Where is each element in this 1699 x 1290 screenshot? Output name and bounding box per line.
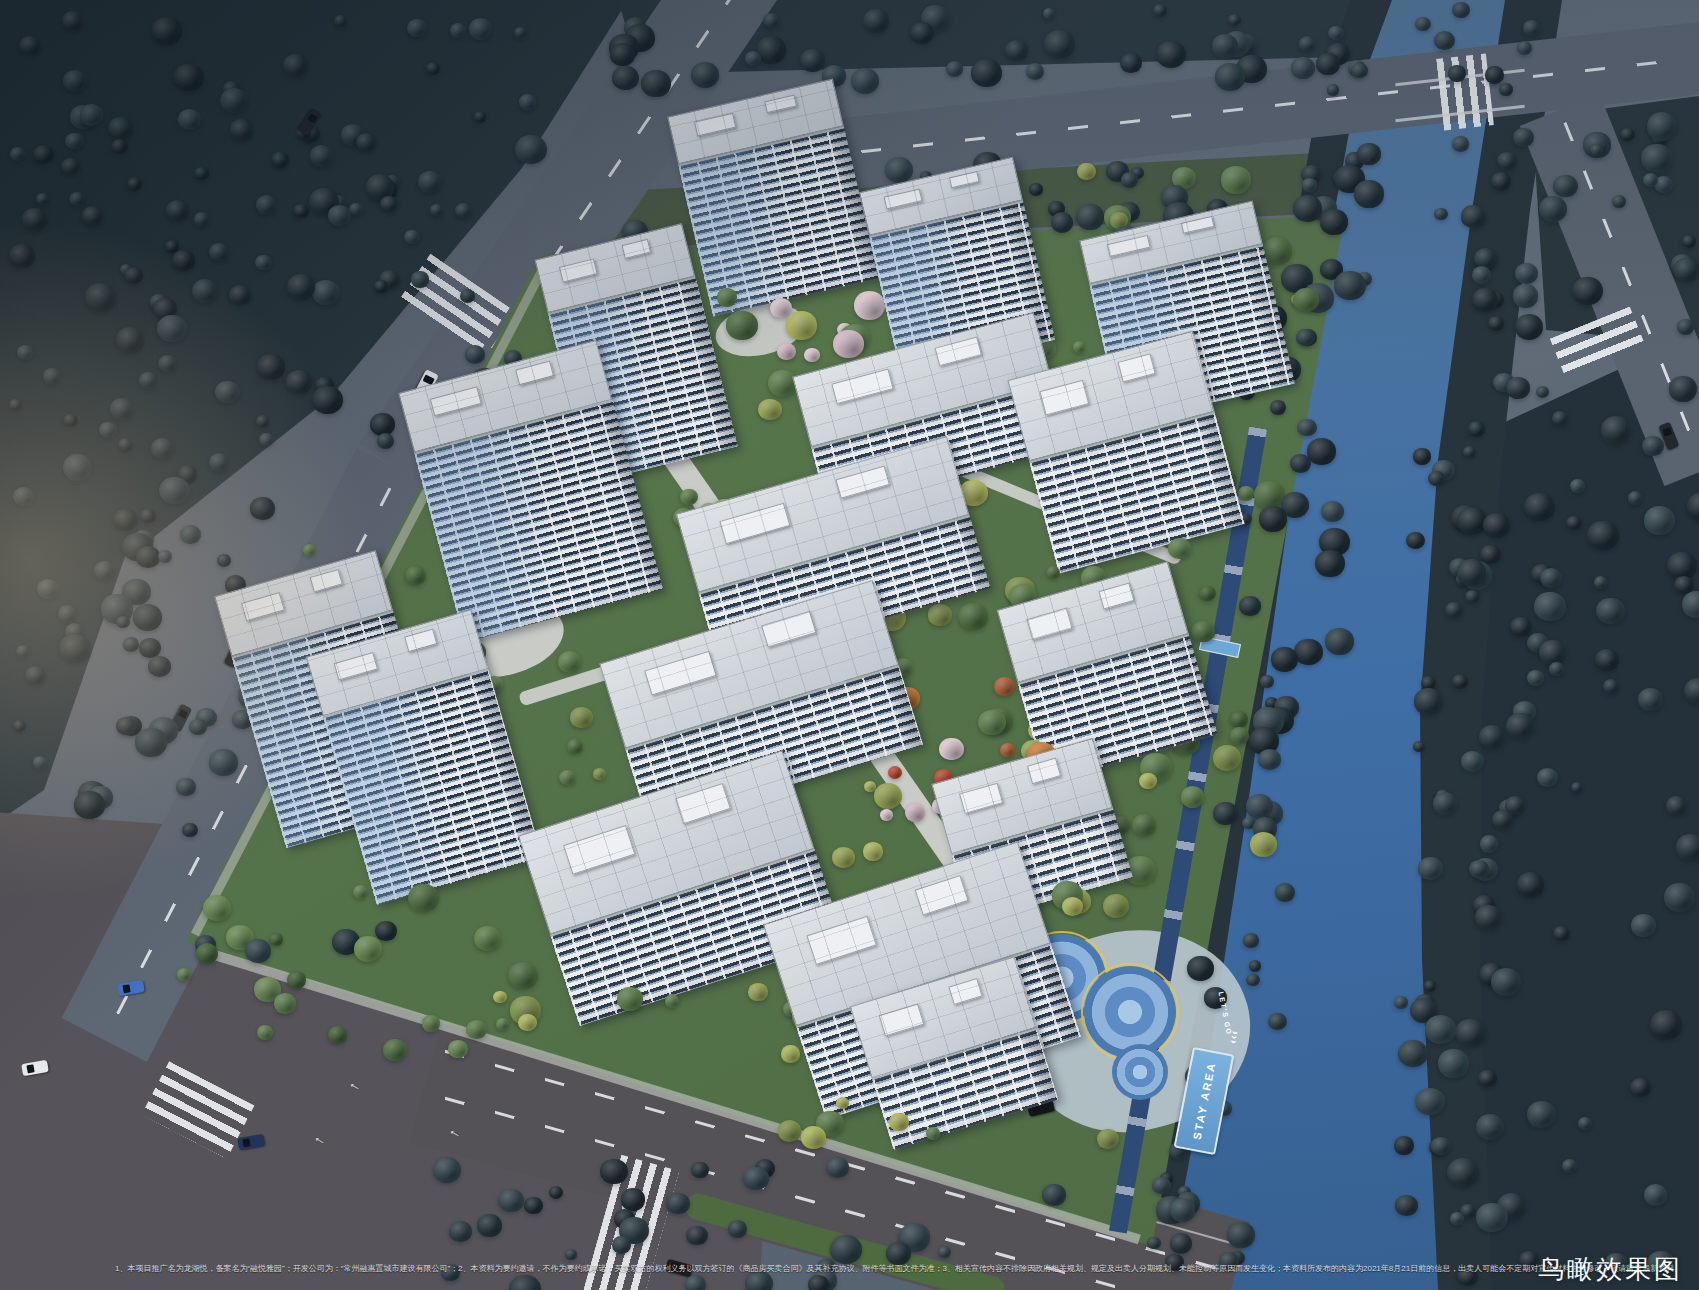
tree [1595, 649, 1619, 671]
tree [1325, 628, 1355, 655]
tree [229, 285, 250, 305]
tree [1447, 1158, 1479, 1187]
tree [1431, 1137, 1451, 1155]
tree [430, 204, 442, 215]
tree [800, 49, 825, 72]
tree [1243, 933, 1259, 948]
tree [1258, 749, 1281, 770]
tree [1478, 1070, 1496, 1087]
aerial-render-scene: ↑ ↑ ↑ ↑ STAY AREA LET'S GO ››› 1、本项目推广名为… [0, 0, 1699, 1290]
tree [1073, 341, 1085, 352]
tree [61, 158, 79, 175]
tree [612, 66, 639, 91]
tree [1682, 235, 1696, 248]
tree [680, 489, 698, 505]
roof-structure [883, 189, 922, 210]
tree [209, 243, 229, 261]
tree [1664, 883, 1695, 912]
tree [1537, 768, 1558, 787]
tree [123, 637, 139, 652]
tree [356, 133, 376, 152]
tree [928, 604, 951, 626]
tree [1246, 794, 1273, 819]
tree [758, 399, 782, 421]
tree [9, 399, 22, 411]
tree [1450, 1212, 1464, 1225]
tree [37, 579, 59, 599]
tree [65, 133, 83, 150]
tree [375, 921, 397, 941]
tree [610, 43, 635, 66]
tree [380, 196, 398, 212]
tree [617, 987, 643, 1011]
tree [22, 208, 47, 231]
roof-structure [310, 569, 343, 592]
tree [220, 88, 248, 114]
tree [1097, 1129, 1119, 1149]
tree [1631, 914, 1656, 937]
tree [9, 244, 35, 268]
tree [135, 728, 167, 757]
tree [1418, 857, 1443, 880]
tree [312, 280, 339, 305]
tree [685, 1275, 706, 1290]
tree [808, 1275, 829, 1290]
tree [1572, 277, 1603, 305]
tree [433, 1157, 461, 1183]
tree [1534, 592, 1565, 621]
tree [25, 666, 45, 685]
tree [1587, 521, 1618, 550]
car-windshield [1662, 427, 1672, 436]
tree [255, 255, 271, 270]
tree [286, 370, 312, 394]
tree [1334, 271, 1366, 300]
tree [1005, 40, 1028, 61]
tree [493, 991, 506, 1003]
tree [508, 962, 538, 989]
car-windshield [178, 709, 188, 719]
tree [621, 1188, 645, 1210]
tree [1480, 835, 1499, 852]
tree [466, 1020, 487, 1039]
tree [593, 768, 606, 780]
tree [1469, 860, 1488, 878]
tree [1452, 136, 1469, 151]
tree [1213, 802, 1238, 825]
tree [474, 111, 486, 122]
tree [1455, 1019, 1486, 1047]
tree [786, 311, 817, 340]
roof-structure [879, 1004, 924, 1037]
tree [1228, 14, 1241, 26]
tree [196, 943, 218, 964]
tree [139, 638, 161, 658]
roof-structure [959, 782, 1003, 813]
tree [926, 1127, 940, 1140]
tree [826, 1157, 849, 1178]
tree [139, 372, 157, 388]
tree [691, 1162, 709, 1178]
tree [1415, 1088, 1445, 1115]
tree [411, 271, 429, 287]
tree [159, 477, 189, 505]
tree [1480, 545, 1501, 564]
car-windshield [307, 113, 318, 123]
tree [203, 895, 232, 921]
tree [1395, 1195, 1418, 1216]
tree [666, 1193, 689, 1214]
tree [1296, 329, 1315, 346]
tree [863, 842, 883, 860]
car-windshield [122, 984, 130, 993]
tree [209, 453, 229, 472]
tree [1601, 416, 1631, 444]
tree [173, 64, 203, 92]
tree [404, 230, 419, 244]
tree [192, 279, 218, 303]
roof-structure [644, 651, 717, 696]
roof-structure [404, 629, 438, 652]
roof-structure [1098, 582, 1134, 609]
tree [1299, 36, 1316, 51]
roof-structure [1181, 216, 1214, 234]
tree [1491, 172, 1511, 191]
tree [136, 546, 159, 567]
tree [1187, 956, 1214, 981]
tree [1461, 751, 1484, 772]
tree [477, 1214, 502, 1237]
tree [565, 1249, 577, 1260]
tree [1120, 53, 1142, 73]
tree [63, 70, 86, 91]
tree [1221, 166, 1251, 193]
tree [189, 719, 207, 735]
tree [1638, 688, 1663, 711]
tree [1485, 66, 1504, 83]
tree [1191, 621, 1215, 643]
roof-structure [241, 592, 284, 621]
tree [43, 368, 61, 385]
tree [1415, 17, 1431, 31]
tree [686, 1226, 707, 1245]
roof-structure [765, 94, 797, 113]
tree [274, 993, 296, 1013]
tree [778, 1120, 802, 1142]
tree [958, 603, 987, 630]
roof-structure [831, 368, 894, 404]
roof-structure [1039, 380, 1089, 416]
tree [1026, 63, 1045, 80]
tree [889, 1113, 908, 1131]
tree [1297, 419, 1316, 437]
tree [283, 54, 308, 77]
tree [1213, 745, 1242, 771]
roof-structure [934, 337, 982, 366]
roof-structure [559, 258, 598, 282]
tree [1570, 479, 1585, 492]
tree [1628, 491, 1643, 505]
tree [1170, 1233, 1193, 1254]
tree [1483, 513, 1510, 538]
tree [1246, 974, 1260, 986]
tree [257, 354, 285, 380]
tree [1643, 173, 1659, 187]
tree [836, 1097, 849, 1109]
tree [33, 756, 47, 769]
tree [69, 192, 85, 206]
roof-structure [622, 239, 652, 259]
tree [1413, 448, 1431, 464]
tree [1491, 968, 1522, 996]
tree [1029, 183, 1043, 196]
tree [1357, 143, 1381, 165]
tree [1398, 1040, 1428, 1068]
tree [1394, 1136, 1414, 1155]
tree [1603, 679, 1619, 694]
tree [1271, 647, 1298, 672]
tree [157, 315, 187, 342]
roof-structure [694, 113, 736, 136]
car-windshield [26, 1064, 34, 1073]
tree [1315, 550, 1345, 577]
tree [939, 738, 963, 760]
tree [748, 983, 767, 1001]
tree [1249, 960, 1261, 971]
tree [1394, 996, 1407, 1008]
tree [1553, 175, 1577, 198]
tree [1562, 1159, 1577, 1173]
tree [515, 135, 547, 164]
tree [559, 770, 576, 785]
roof-structure [430, 386, 482, 416]
tree [1539, 196, 1567, 222]
tree [259, 433, 274, 447]
tree [99, 422, 117, 439]
tree [455, 203, 472, 219]
tree [1596, 598, 1624, 624]
tree [509, 1275, 541, 1290]
tree [80, 104, 103, 125]
tree [832, 847, 855, 868]
tree [1215, 63, 1245, 91]
tree [62, 11, 83, 30]
tree [180, 525, 201, 544]
tree [1153, 4, 1167, 17]
tree [1515, 314, 1543, 340]
roof-structure [1026, 608, 1073, 641]
tree [910, 22, 934, 44]
tree [1445, 602, 1463, 618]
tree [763, 13, 779, 28]
roof-structure [761, 611, 817, 648]
tree [374, 280, 388, 293]
roof-structure [807, 916, 877, 966]
tree [768, 370, 797, 396]
tree [558, 651, 581, 673]
playground-circle [1112, 1044, 1168, 1100]
tree [1641, 144, 1673, 173]
tree [194, 212, 209, 226]
tree [1230, 727, 1249, 744]
tree [1463, 446, 1476, 458]
tree [726, 311, 758, 340]
tree [245, 939, 271, 963]
tree [418, 171, 442, 193]
tree [1497, 152, 1517, 170]
tree [1227, 1222, 1255, 1248]
tree [250, 497, 275, 520]
tree [1238, 486, 1254, 501]
tree [1327, 84, 1339, 95]
tree [1517, 872, 1545, 897]
tree [1156, 41, 1186, 69]
tree [498, 1189, 524, 1213]
tree [148, 656, 171, 677]
tree [1644, 1184, 1668, 1206]
tree [110, 398, 134, 420]
tree [665, 994, 680, 1007]
tree [1294, 639, 1322, 665]
tree [1438, 1049, 1469, 1078]
tree [113, 509, 138, 532]
tree [116, 327, 144, 353]
tree [94, 561, 115, 580]
tree [518, 1014, 537, 1031]
tree [82, 206, 103, 225]
tree [1468, 421, 1486, 437]
tree [777, 343, 795, 360]
tree [33, 145, 54, 164]
tree [172, 250, 195, 271]
tree [1673, 258, 1699, 282]
tree [230, 119, 253, 141]
roof-structure [949, 171, 979, 188]
tree [600, 1159, 627, 1184]
tree [1414, 688, 1443, 715]
tree [1650, 1010, 1682, 1039]
roof-structure [719, 502, 790, 544]
tree [1132, 814, 1156, 836]
tree [312, 386, 343, 414]
tree [1320, 209, 1348, 235]
tree [781, 1045, 800, 1062]
tree [851, 68, 879, 94]
tree [1553, 926, 1570, 941]
tree [519, 94, 536, 110]
car-windshield [242, 1138, 250, 1147]
tree [1527, 1101, 1556, 1128]
tree [256, 195, 277, 214]
tree [1413, 741, 1425, 752]
tree [1139, 773, 1157, 789]
tree [1425, 1015, 1456, 1044]
tree [1260, 675, 1274, 688]
tree [1647, 112, 1678, 140]
tree [1594, 576, 1607, 588]
tree [194, 167, 209, 181]
tree [612, 1236, 631, 1254]
tree [1076, 204, 1104, 229]
tree [1307, 438, 1336, 465]
tree [1669, 376, 1697, 402]
tree [978, 710, 1006, 735]
tree [1666, 796, 1688, 816]
tree [111, 139, 128, 154]
tree [1476, 1114, 1504, 1140]
tree [1539, 640, 1566, 665]
tree [209, 749, 238, 775]
tree [971, 59, 1002, 87]
roof-structure [1027, 758, 1061, 784]
tree [1676, 834, 1699, 861]
tree [334, 15, 347, 27]
tree [256, 415, 269, 427]
tree [641, 70, 671, 97]
tree [1434, 208, 1447, 220]
tree [85, 283, 116, 312]
tree [1510, 617, 1532, 637]
tree [1677, 319, 1694, 335]
tree [1475, 905, 1502, 930]
tree [1552, 411, 1568, 426]
tree [1540, 568, 1562, 588]
tree [1524, 493, 1555, 521]
tree [176, 778, 195, 796]
tree [1354, 180, 1384, 208]
tree [1328, 26, 1344, 41]
tree [1042, 1184, 1066, 1206]
tree [1479, 725, 1505, 749]
tree [257, 1025, 273, 1040]
tree [1644, 506, 1675, 535]
tree [1492, 810, 1513, 829]
roof-structure [675, 783, 730, 824]
tree [1103, 894, 1129, 918]
tree [465, 345, 486, 364]
tree [1549, 662, 1564, 676]
tree [728, 1220, 747, 1238]
tree [1566, 516, 1582, 531]
tree [1448, 65, 1466, 82]
tree [426, 62, 440, 75]
roof-structure [515, 361, 554, 385]
track-chevrons: ››› [1228, 1030, 1242, 1046]
tree [833, 330, 863, 358]
tree [287, 274, 315, 300]
tree [1506, 377, 1530, 399]
tree [1321, 501, 1344, 522]
roof-structure [334, 652, 378, 681]
tree [1488, 316, 1504, 331]
tree [448, 1040, 468, 1058]
tree [1302, 178, 1316, 191]
tree [905, 803, 925, 822]
tree [524, 1197, 542, 1214]
tree [1212, 34, 1238, 58]
tree [63, 414, 78, 428]
tree [886, 1242, 911, 1265]
tree [269, 933, 282, 945]
roof-structure [1118, 353, 1157, 382]
roof-structure [948, 978, 983, 1005]
tree [407, 19, 427, 37]
tree [946, 61, 964, 77]
tree [328, 1026, 347, 1043]
tree [567, 739, 583, 754]
tree [1170, 1198, 1195, 1221]
tree [1077, 163, 1096, 180]
